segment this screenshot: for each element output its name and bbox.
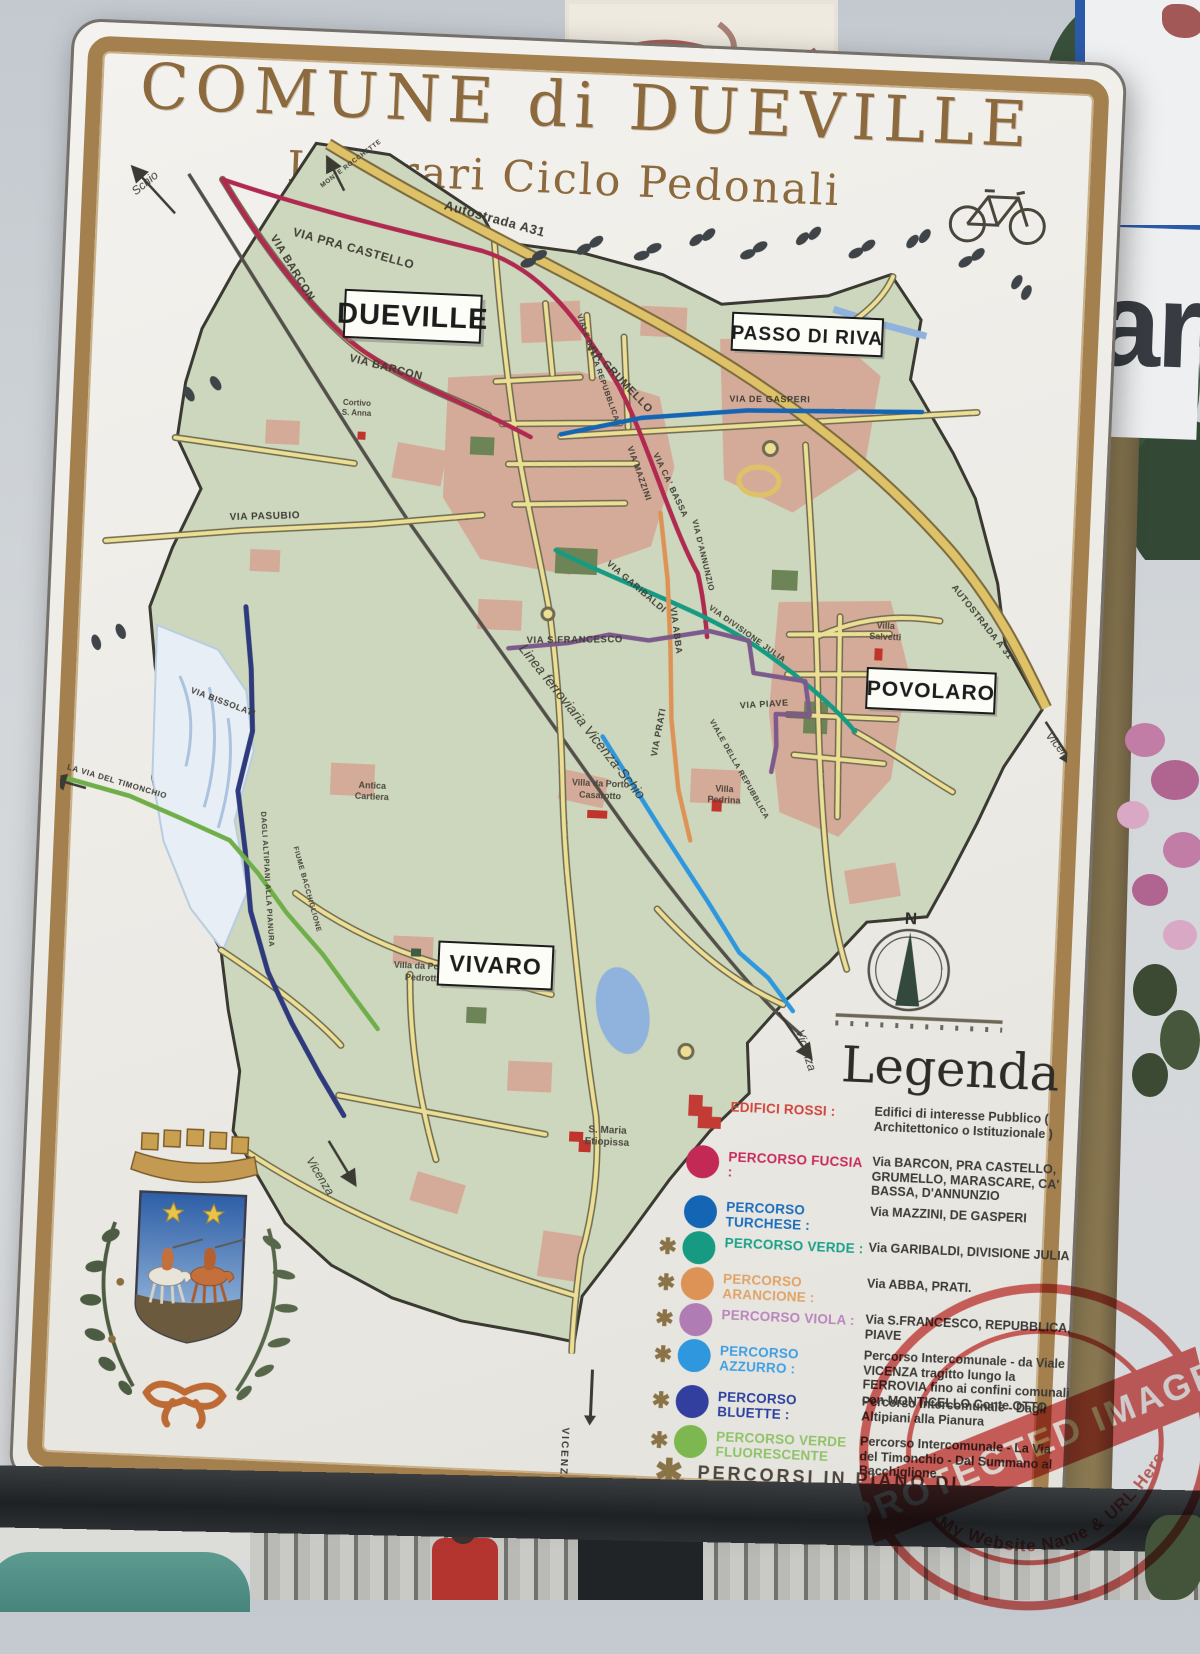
arrow-line [588, 1370, 593, 1416]
ribbon-bow [145, 1383, 223, 1426]
road-label: VIA PASUBIO [230, 510, 301, 523]
svg-text:Pedrina: Pedrina [707, 794, 741, 805]
compass-north-label: N [904, 909, 917, 929]
route-swatch-icon [682, 1230, 716, 1264]
adjacent-sign-graphic [1162, 4, 1200, 38]
legend-item-name: PERCORSO FUCSIA : [727, 1149, 870, 1185]
compass-icon: N [867, 907, 951, 1011]
asterisk-icon: ✱ [658, 1233, 678, 1260]
legend-item-name: PERCORSO VERDE : [724, 1235, 867, 1256]
svg-text:Etiopissa: Etiopissa [584, 1136, 629, 1149]
edge-label: Vicenza [1043, 729, 1081, 771]
dueville-coat-of-arms [39, 1106, 341, 1435]
svg-text:S. Maria: S. Maria [588, 1124, 627, 1137]
svg-text:Pedrotti: Pedrotti [405, 972, 439, 983]
route-swatch-icon [680, 1266, 714, 1300]
arrow-head [584, 1415, 596, 1426]
svg-text:Villa: Villa [715, 783, 735, 794]
watermark-banner-text: PROTECTED IMAGE [843, 1352, 1200, 1538]
legend-item-name: PERCORSO TURCHESE : [725, 1199, 868, 1235]
legend-item-desc: Edifici di interesse Pubblico ( Architet… [874, 1105, 1085, 1143]
legend-item: ✱PERCORSO ARANCIONE :Via ABBA, PRATI. [652, 1267, 1062, 1285]
town-label-dueville: DUEVILLE [336, 298, 489, 337]
legend-item-desc: Via MAZZINI, DE GASPERI [870, 1205, 1080, 1229]
route-swatch-icon [675, 1384, 709, 1418]
svg-text:Cartiera: Cartiera [355, 791, 390, 803]
legend-item-desc: Via BARCON, PRA CASTELLO, GRUMELLO, MARA… [871, 1155, 1083, 1208]
route-swatch-icon [677, 1338, 711, 1372]
town-label-vivaro: VIVARO [449, 950, 543, 980]
route-swatch-icon [685, 1145, 719, 1179]
road-label: VIA DE GASPERI [729, 394, 810, 405]
route-swatch-icon [679, 1302, 713, 1336]
legend-item: PERCORSO FUCSIA :Via BARCON, PRA CASTELL… [657, 1145, 1067, 1163]
background-car-roof [0, 1552, 250, 1612]
building-swatch-icon [688, 1095, 722, 1129]
legend-item-name: PERCORSO ARANCIONE : [722, 1271, 865, 1307]
svg-text:Antica: Antica [358, 780, 387, 791]
road-label: VIA S.FRANCESCO [527, 634, 623, 646]
route-swatch-icon [683, 1194, 717, 1228]
legend-item-desc: Via GARIBALDI, DIVISIONE JULIA [868, 1241, 1078, 1265]
asterisk-icon: ✱ [649, 1427, 669, 1454]
asterisk-icon: ✱ [653, 1341, 673, 1368]
svg-text:S. Anna: S. Anna [342, 408, 372, 418]
legend-item-name: EDIFICI ROSSI : [730, 1099, 873, 1120]
asterisk-icon: ✱ [656, 1269, 676, 1296]
oak-branch [76, 1221, 142, 1398]
scale-bar [835, 1015, 1002, 1030]
svg-text:Casarotto: Casarotto [579, 790, 622, 802]
asterisk-icon: ✱ [651, 1387, 671, 1414]
svg-text:Salvetti: Salvetti [869, 631, 901, 642]
background-pedestrian [432, 1538, 498, 1600]
mural-crown [130, 1127, 259, 1185]
magnolia-flowers [1105, 700, 1200, 1100]
svg-text:Cortivo: Cortivo [343, 398, 371, 408]
vicenza-exit-arrow: VICENZA [558, 1368, 622, 1471]
asterisk-icon: ✱ [655, 1305, 675, 1332]
svg-text:Villa: Villa [876, 620, 896, 631]
